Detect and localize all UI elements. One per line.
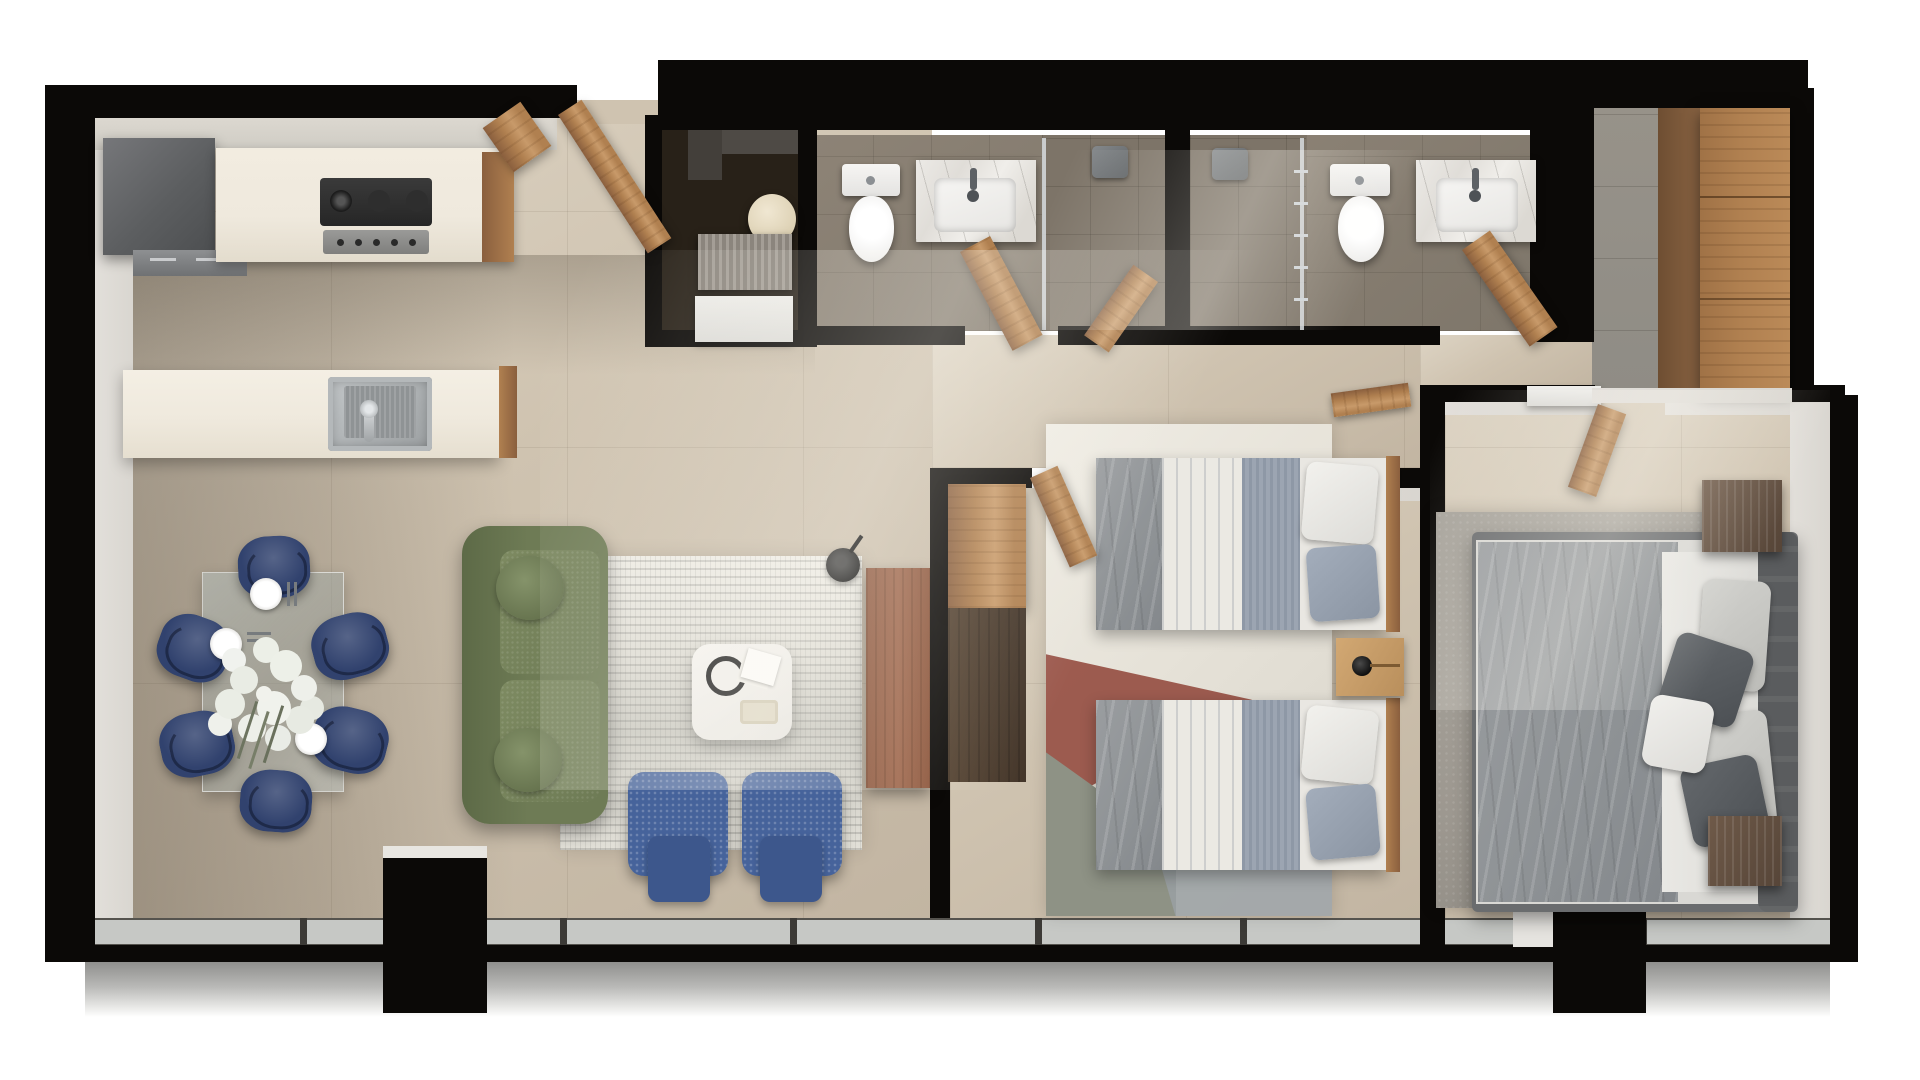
coffee-table-tray [740, 700, 778, 724]
cabinet-handle [150, 258, 176, 261]
cutlery [247, 632, 271, 635]
twin-bed-headboard [1386, 698, 1400, 872]
armchair-seat [760, 836, 822, 902]
plate [295, 723, 327, 755]
shower-head-bath2 [1212, 148, 1248, 180]
window-mullion [790, 918, 797, 947]
structural-column-left [383, 858, 487, 1013]
plate [250, 578, 282, 610]
wall-under-wardrobe [1592, 388, 1792, 403]
cooktop-knob [337, 239, 344, 246]
toilet-flush-button [1355, 176, 1364, 185]
corridor-floor-right [1420, 335, 1600, 387]
twin-bed-foot-drape [1096, 700, 1168, 870]
twin-bed-blanket [1162, 458, 1246, 630]
tv-console [866, 568, 930, 788]
wall-closet-right [798, 128, 817, 347]
plate [210, 628, 242, 660]
window-mullion [300, 918, 307, 947]
vanity-faucet-bath1 [970, 168, 977, 190]
master-nightstand-bottom [1708, 816, 1782, 886]
shower-head-bath1 [1092, 146, 1128, 178]
wall-between-baths [1165, 60, 1190, 345]
shower-glass-bath1 [1042, 138, 1046, 330]
twin-wardrobe-upper [948, 484, 1026, 608]
sofa-bolster-pillow [496, 556, 564, 620]
wall-top-kitchen [45, 85, 557, 118]
window-mullion [1035, 918, 1042, 947]
wardrobe-seam [1700, 298, 1790, 300]
twin-bed-pillow [1300, 704, 1379, 785]
twin-bed-pillow-gray [1305, 783, 1381, 861]
window-mullion [1240, 918, 1247, 947]
chair-seam [247, 778, 311, 832]
twin-bed-pillow-gray [1306, 544, 1381, 623]
shower-glass-bath2 [1300, 138, 1304, 330]
window-mullion [560, 918, 567, 947]
utility-closet-wall-stub [688, 128, 722, 180]
toilet-bowl [849, 196, 894, 262]
vanity-faucet-bath2 [1472, 168, 1479, 190]
toilet-bowl [1338, 196, 1384, 262]
sink-basin [344, 386, 416, 438]
flower-centerpiece [256, 686, 272, 702]
twin-bed-pillow [1301, 461, 1380, 545]
lamp-arm [1370, 664, 1400, 667]
twin-bed-gray-band [1242, 700, 1300, 870]
vanity-faucet-knob-bath1 [967, 190, 979, 202]
nightstand-lamp [1352, 656, 1372, 676]
wall-bath1-bottom-left [812, 326, 965, 345]
sofa-bolster-pillow [494, 728, 562, 792]
toilet-flush-button [866, 176, 875, 185]
entry-hall-floor [1592, 107, 1660, 403]
cooktop-burner [330, 190, 352, 212]
master-nightstand-top [1702, 480, 1782, 552]
entry-wardrobe-side [1658, 108, 1702, 390]
entry-wardrobe-front [1700, 108, 1790, 390]
vent-unit [698, 234, 792, 290]
wall-entry-right [1788, 88, 1814, 403]
refrigerator [103, 138, 215, 255]
cutlery [287, 582, 290, 606]
twin-bed-blanket [1162, 700, 1246, 870]
wall-clock [826, 548, 860, 582]
island-wood-end [499, 366, 517, 458]
kitchen-island [123, 370, 499, 458]
counter-wood-end [482, 152, 514, 262]
bathroom-2-shower-floor [1190, 135, 1306, 331]
dining-chair [238, 768, 314, 835]
wall-entry-block-top [1582, 60, 1808, 108]
floor-plan [0, 0, 1920, 1080]
twin-bed-headboard [1386, 456, 1400, 632]
window-band [95, 918, 1420, 947]
twin-wardrobe-lower [948, 608, 1026, 782]
vanity-faucet-knob-bath2 [1469, 190, 1481, 202]
towel-ladder-bath2 [1294, 170, 1308, 173]
master-wall-shelf-white [1527, 386, 1601, 406]
wardrobe-seam [1700, 196, 1790, 198]
twin-bed-foot-drape [1096, 458, 1168, 630]
twin-bed-gray-band [1242, 458, 1300, 630]
master-pillow-white [1640, 693, 1716, 775]
wall-bath2-bottom [1190, 326, 1440, 345]
sink-faucet-head [360, 400, 378, 418]
wall-living-bedroom-partition [930, 468, 950, 945]
wall-bath-block-top [658, 60, 1592, 130]
wall-left [45, 85, 95, 962]
wall-master-right [1830, 395, 1858, 962]
armchair-seat [648, 836, 710, 902]
white-appliance [695, 296, 793, 342]
